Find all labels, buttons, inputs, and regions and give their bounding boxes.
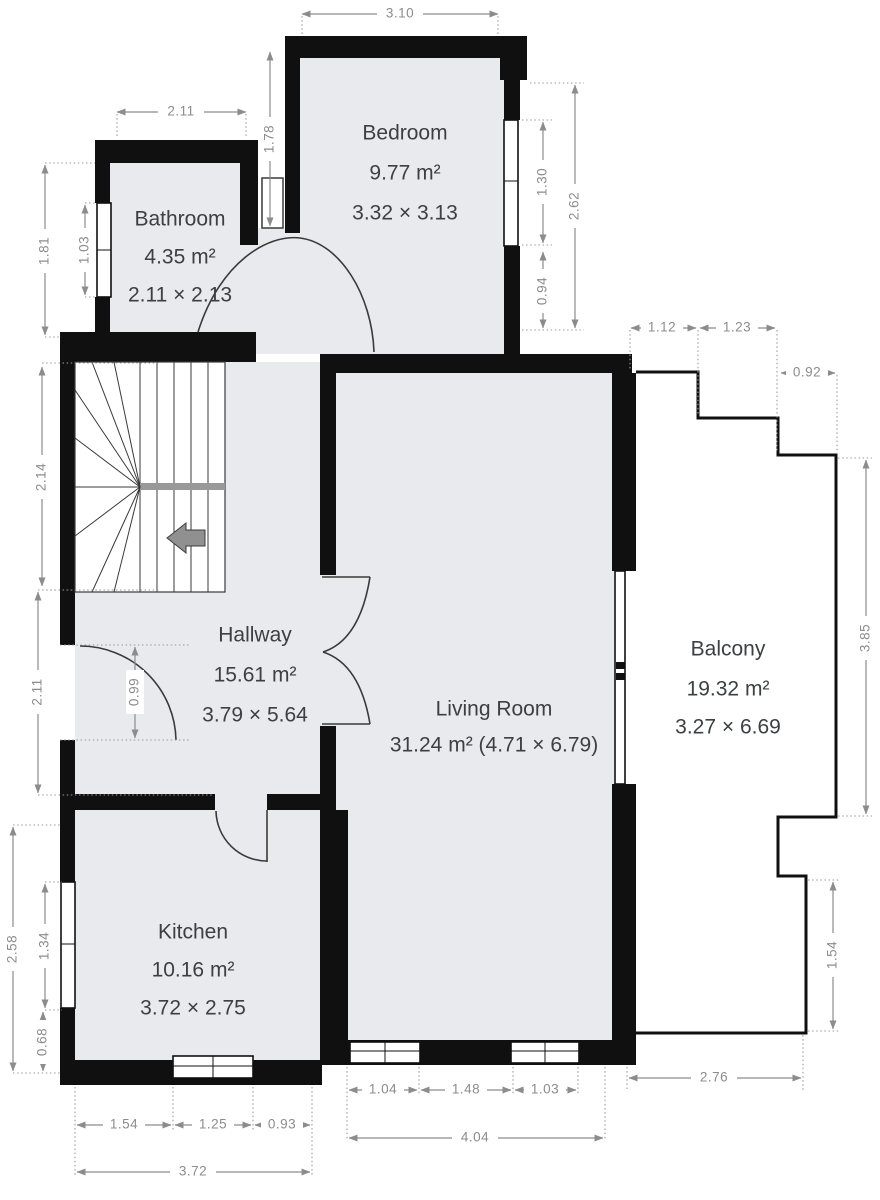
kitchen-doorway [215, 794, 267, 812]
dim-balcony-step3: 0.92 [781, 364, 837, 453]
balcony-outline [626, 372, 836, 1033]
bathroom-window [97, 203, 111, 297]
bedroom-window [504, 120, 518, 246]
svg-text:3.27 × 6.69: 3.27 × 6.69 [675, 716, 781, 739]
svg-text:1.48: 1.48 [452, 1082, 480, 1097]
dim-balcony-bottom: 2.76 [627, 1035, 803, 1090]
svg-text:3.10: 3.10 [386, 6, 414, 21]
svg-text:1.54: 1.54 [110, 1117, 138, 1132]
dim-balcony-step1: 1.12 [630, 319, 698, 416]
floor-plan-page: Bathroom 4.35 m² 2.11 × 2.13 Bedroom 9.7… [0, 0, 880, 1195]
living-window-right [511, 1042, 579, 1063]
svg-text:31.24 m² (4.71 × 6.79): 31.24 m² (4.71 × 6.79) [390, 734, 598, 757]
dim-balcony-right-lower: 1.54 [808, 880, 842, 1031]
svg-text:1.34: 1.34 [37, 932, 52, 960]
svg-text:0.68: 0.68 [35, 1028, 50, 1056]
svg-text:3.32 × 3.13: 3.32 × 3.13 [352, 202, 458, 225]
kitchen-bottom-window [173, 1056, 253, 1078]
svg-text:1.12: 1.12 [648, 320, 676, 335]
room-label-balcony: Balcony 19.32 m² 3.27 × 6.69 [675, 638, 781, 739]
svg-text:1.23: 1.23 [723, 320, 751, 335]
svg-text:1.25: 1.25 [199, 1117, 227, 1132]
svg-text:0.92: 0.92 [793, 365, 821, 380]
dim-bedroom-right-lower: 0.94 [534, 252, 552, 328]
svg-text:Living Room: Living Room [436, 698, 553, 721]
staircase [75, 362, 225, 592]
svg-text:1.03: 1.03 [531, 1082, 559, 1097]
svg-text:0.93: 0.93 [268, 1117, 296, 1132]
dim-kitchen-bottom-row: 1.54 1.25 0.93 [75, 1087, 312, 1175]
svg-text:2.11 × 2.13: 2.11 × 2.13 [128, 284, 232, 307]
svg-text:15.61 m²: 15.61 m² [214, 664, 297, 687]
dim-balcony-step2: 1.23 [700, 319, 777, 453]
svg-text:9.77 m²: 9.77 m² [369, 162, 440, 185]
dim-kitchen-left-window: 1.34 [36, 882, 62, 1010]
dim-living-bottom-total: 4.04 [349, 1129, 603, 1147]
svg-text:Bedroom: Bedroom [362, 122, 447, 145]
floor-plan-canvas: Bathroom 4.35 m² 2.11 × 2.13 Bedroom 9.7… [0, 0, 880, 1195]
svg-text:2.62: 2.62 [567, 192, 582, 220]
svg-text:Kitchen: Kitchen [158, 921, 228, 944]
svg-text:0.94: 0.94 [535, 277, 550, 305]
svg-text:3.72: 3.72 [179, 1164, 207, 1179]
dim-bedroom-top: 3.10 [302, 5, 498, 34]
svg-text:19.32 m²: 19.32 m² [687, 678, 770, 701]
svg-text:2.11: 2.11 [30, 678, 45, 705]
svg-text:2.76: 2.76 [700, 1070, 728, 1085]
svg-text:Hallway: Hallway [218, 624, 292, 647]
dim-bathroom-top: 2.11 [117, 103, 246, 138]
svg-text:2.14: 2.14 [34, 463, 49, 491]
svg-text:3.85: 3.85 [858, 624, 873, 652]
svg-text:1.04: 1.04 [369, 1082, 397, 1097]
svg-text:1.81: 1.81 [37, 237, 52, 265]
svg-text:0.99: 0.99 [127, 678, 142, 706]
svg-text:2.11: 2.11 [167, 104, 194, 119]
svg-text:10.16 m²: 10.16 m² [152, 959, 235, 982]
living-window-left [350, 1042, 420, 1063]
dim-bedroom-window: 1.30 [522, 120, 552, 245]
svg-text:4.04: 4.04 [461, 1130, 489, 1145]
dim-balcony-right: 3.85 [838, 458, 875, 816]
svg-text:1.03: 1.03 [77, 236, 92, 264]
svg-text:1.54: 1.54 [825, 941, 840, 969]
svg-text:1.78: 1.78 [262, 125, 277, 153]
dim-kitchen-bottom-total: 3.72 [77, 1163, 310, 1181]
dim-bathroom-left-window: 1.03 [76, 203, 97, 297]
svg-text:Balcony: Balcony [691, 638, 766, 661]
door-leaf-panel [262, 178, 283, 228]
dim-kitchen-left-lower: 0.68 [34, 1012, 52, 1071]
balcony-glass-wall [615, 571, 625, 784]
svg-text:4.35 m²: 4.35 m² [144, 246, 215, 269]
kitchen-left-window [61, 882, 75, 1008]
svg-text:1.30: 1.30 [535, 168, 550, 196]
svg-text:Bathroom: Bathroom [134, 208, 225, 231]
svg-text:3.79 × 5.64: 3.79 × 5.64 [202, 704, 308, 727]
svg-text:2.58: 2.58 [5, 935, 20, 963]
svg-text:3.72 × 2.75: 3.72 × 2.75 [140, 997, 246, 1020]
